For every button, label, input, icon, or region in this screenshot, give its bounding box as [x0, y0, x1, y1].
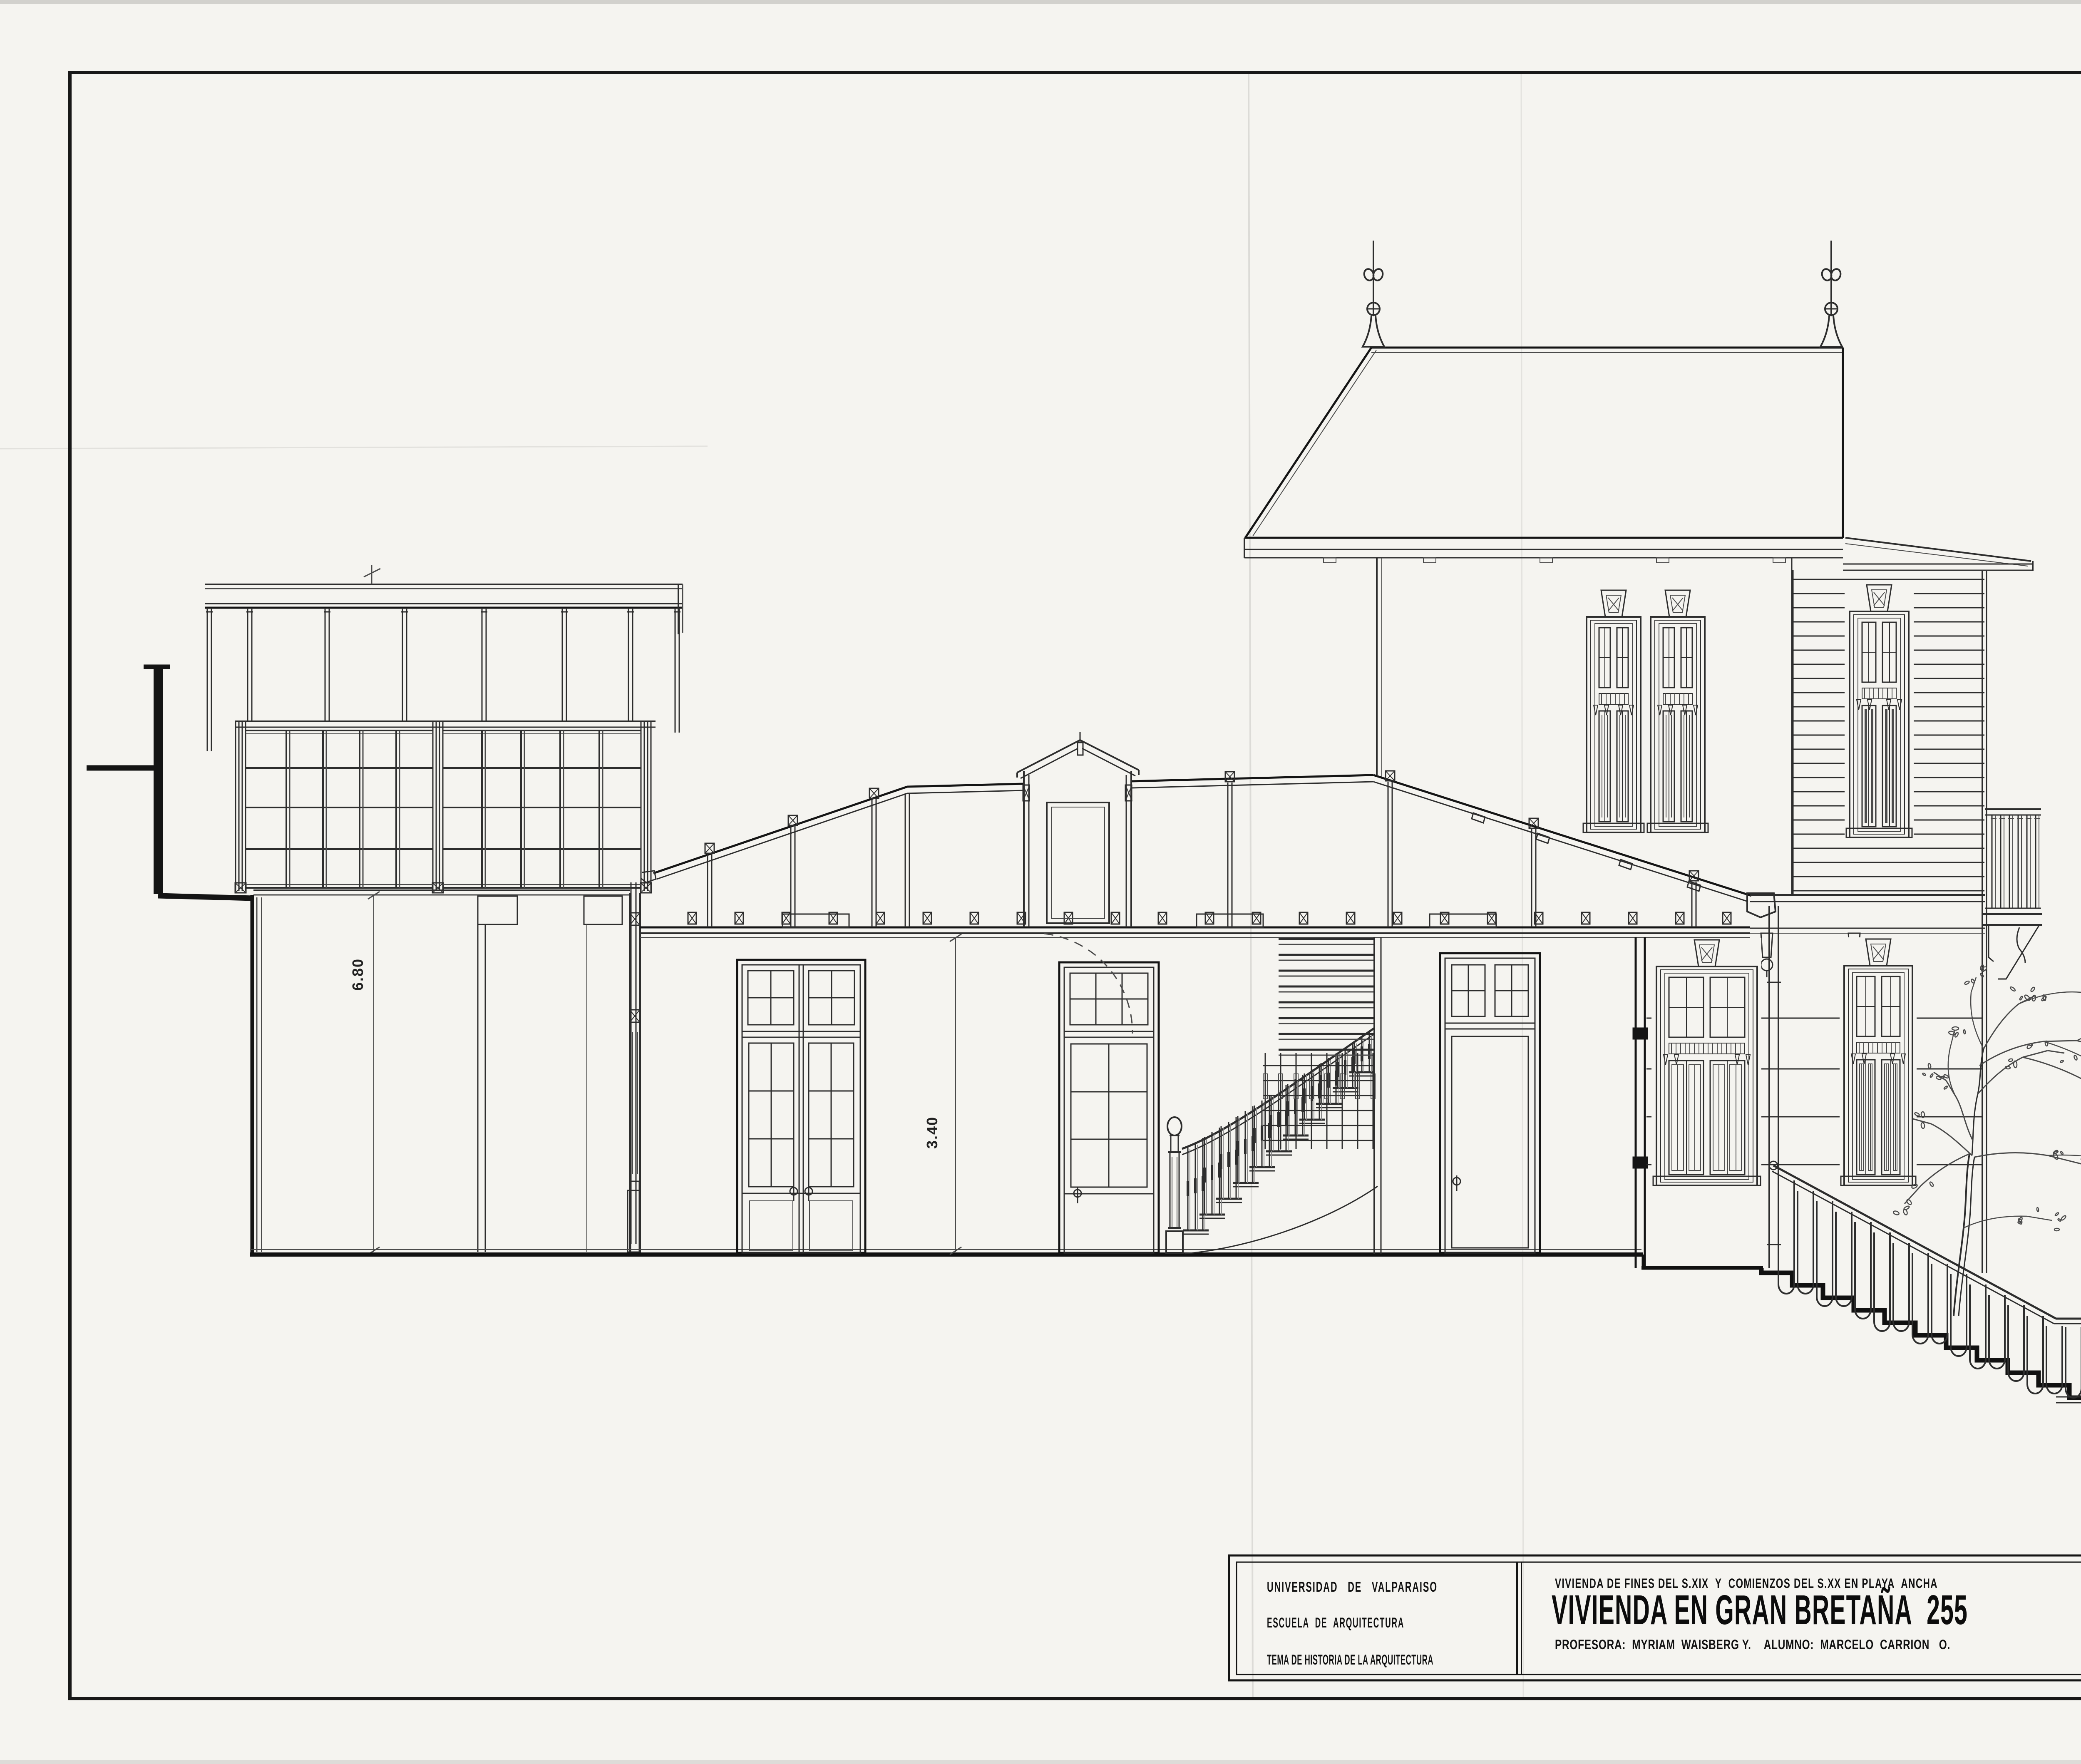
- svg-text:ESCUELA DE ARQUITECTURA: ESCUELA DE ARQUITECTURA: [1267, 1615, 1404, 1631]
- svg-text:PROFESORA: MYRIAM WAISBERG Y: PROFESORA: MYRIAM WAISBERG Y. ALUMNO: MA…: [1555, 1637, 1950, 1652]
- svg-text:TEMA DE HISTORIA DE LA ARQUITE: TEMA DE HISTORIA DE LA ARQUITECTURA: [1267, 1652, 1433, 1668]
- svg-text:6.80: 6.80: [349, 958, 366, 991]
- svg-text:UNIVERSIDAD DE VALPARAISO: UNIVERSIDAD DE VALPARAISO: [1267, 1579, 1438, 1595]
- svg-text:3.40: 3.40: [924, 1116, 941, 1149]
- svg-text:VIVIENDA EN GRAN BRETAÑA 255: VIVIENDA EN GRAN BRETAÑA 255: [1552, 1587, 1968, 1633]
